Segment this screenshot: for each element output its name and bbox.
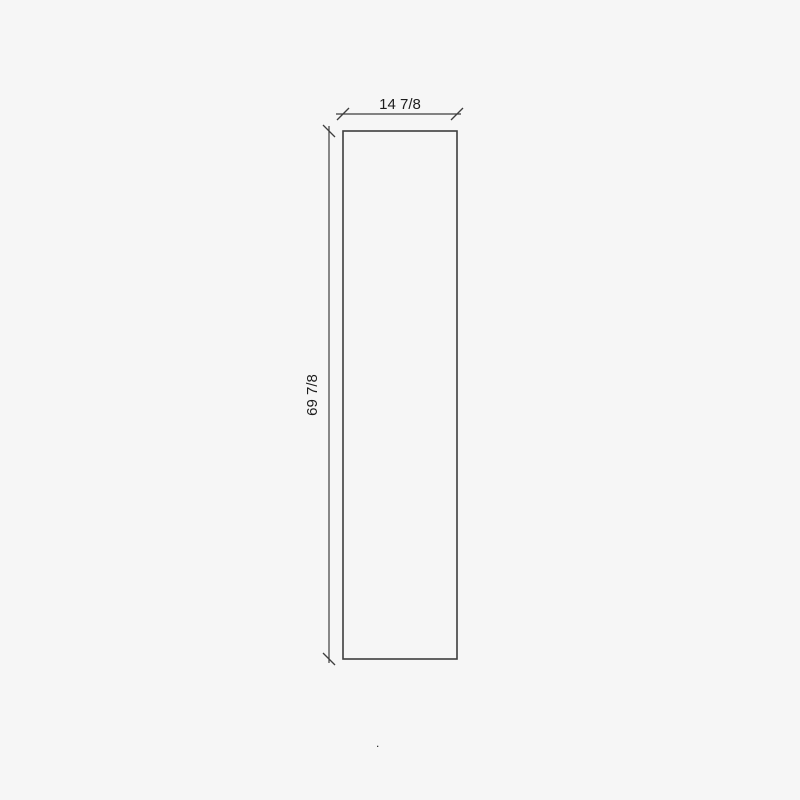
panel-outline <box>343 131 457 659</box>
width-dimension-label: 14 7/8 <box>379 96 421 113</box>
technical-drawing-canvas: 14 7/8 69 7/8 . <box>0 0 800 800</box>
height-dimension-label: 69 7/8 <box>304 374 321 416</box>
stray-dot: . <box>376 736 379 750</box>
width-dimension: 14 7/8 <box>336 96 463 120</box>
dimension-drawing: 14 7/8 69 7/8 . <box>0 0 800 800</box>
height-dimension: 69 7/8 <box>304 125 335 665</box>
